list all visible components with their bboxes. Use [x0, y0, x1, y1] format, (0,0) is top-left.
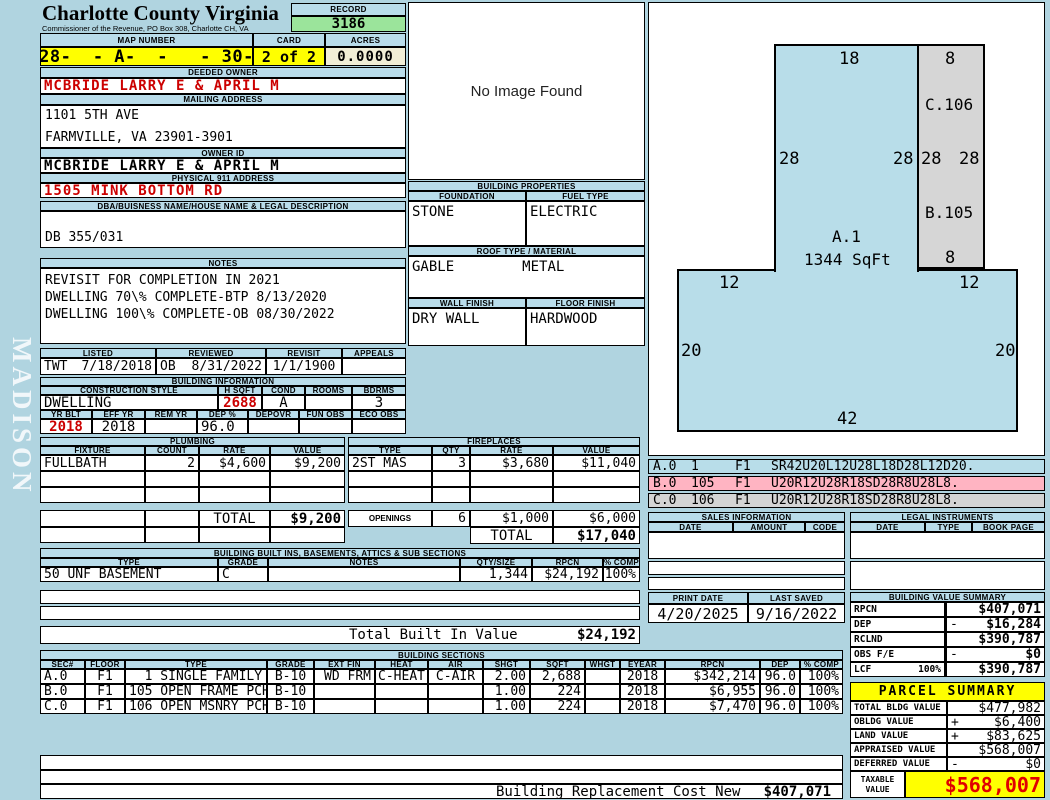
section-b-label: B.105: [925, 203, 973, 222]
built-ins-empty-row: [40, 590, 640, 604]
bs-cell: C-HEAT: [375, 669, 428, 684]
dim-18: 18: [839, 49, 859, 69]
fireplaces-total-value: $17,040: [553, 527, 640, 544]
fireplaces-headers: TYPE QTY RATE VALUE: [348, 446, 640, 455]
rooms-value: [305, 395, 352, 410]
dim-28-gray-left: 28: [921, 149, 941, 169]
county-subtitle: Commissioner of the Revenue, PO Box 308,…: [42, 24, 290, 33]
legend-code: 1: [691, 459, 735, 474]
bs-cell: 224: [530, 684, 585, 699]
revisit-label: REVISIT: [266, 348, 342, 358]
yrblt-label: YR BLT: [40, 410, 92, 419]
bs-cell: 96.0: [760, 684, 800, 699]
replacement-cost-value: $407,071: [740, 784, 839, 799]
reviewed-date: 8/31/2022: [192, 359, 262, 374]
fp-value-label: VALUE: [553, 446, 640, 455]
bs-cell: [375, 699, 428, 714]
legend-code: 106: [691, 493, 735, 508]
ps-value-cell: -$0: [947, 757, 1045, 771]
bs-cell: 106 OPEN MSNRY PCH: [125, 699, 267, 714]
bs-cell: [314, 684, 375, 699]
bs-cell: B-10: [267, 669, 314, 684]
section-a-label: A.1: [832, 227, 861, 246]
sales-code-label: CODE: [805, 522, 845, 532]
no-image-text: No Image Found: [471, 83, 583, 100]
foundation-fuel-headers: FOUNDATION FUEL TYPE: [408, 191, 645, 201]
dim-8-bottom: 8: [945, 248, 955, 268]
acres-value: 0.0000: [325, 47, 406, 66]
bs-cell: 2018: [620, 684, 665, 699]
taxable-value-row: TAXABLE VALUE $568,007: [850, 771, 1045, 798]
last-saved-value: 9/16/2022: [748, 604, 845, 623]
bs-heat-label: HEAT: [375, 660, 428, 669]
plumbing-empty-row: [40, 471, 345, 487]
section-a-sqft: 1344 SqFt: [804, 250, 891, 269]
vs-value: $390,787: [978, 662, 1041, 677]
ps-value: $0: [1025, 757, 1041, 771]
fireplaces-total-label: TOTAL: [470, 527, 553, 544]
bs-cell: 100%: [800, 699, 843, 714]
effyr-value: 2018: [92, 419, 145, 434]
ps-label: DEFERRED VALUE: [850, 757, 947, 771]
roof-label: ROOF TYPE / MATERIAL: [408, 246, 645, 256]
record-value: 3186: [291, 16, 406, 32]
dim-42: 42: [837, 409, 857, 429]
vs-value-cell: -$16,284: [945, 617, 1045, 632]
bdrms-label: BDRMS: [352, 386, 406, 395]
fireplaces-total-row: TOTAL $17,040: [348, 527, 640, 544]
bs-cell: [314, 699, 375, 714]
dim-20-right: 20: [995, 341, 1015, 361]
built-ins-row: 50 UNF BASEMENT C 1,344 $24,192 100%: [40, 567, 640, 582]
plumbing-empty-row: [40, 527, 345, 543]
deeded-owner-label: DEEDED OWNER: [40, 67, 406, 78]
legend-floor: F1: [735, 459, 771, 474]
bs-cell: [585, 684, 620, 699]
legend-trace: SR42U20L12U28L18D28L12D20.: [771, 459, 975, 474]
bi-rpcn-label: RPCN: [532, 558, 603, 567]
fireplaces-empty-row: [348, 487, 640, 503]
hsqft-value: 2688: [218, 395, 262, 410]
empty-cell: [145, 487, 199, 503]
bs-cell: WD FRM: [314, 669, 375, 684]
empty-cell: [145, 527, 199, 543]
bs-sec-label: SEC#: [40, 660, 85, 669]
bs-cell: C.0: [40, 699, 85, 714]
county-watermark: MADISON: [6, 337, 37, 496]
fp-type-value: 2ST MAS: [348, 455, 432, 471]
built-ins-empty-row: [40, 606, 640, 620]
appeals-label: APPEALS: [342, 348, 406, 358]
revisit-value: 1/1/1900: [266, 358, 342, 375]
bs-cell: [585, 699, 620, 714]
last-saved-label: LAST SAVED: [748, 592, 845, 604]
legend-code: 105: [691, 476, 735, 491]
ps-op: +: [951, 715, 959, 729]
vs-op: -: [950, 617, 958, 632]
legend-trace: U20R12U28R18SD28R8U28L8.: [771, 476, 959, 491]
empty-cell: [470, 487, 553, 503]
construction-values: DWELLING 2688 A 3: [40, 395, 406, 410]
openings-rate: $1,000: [470, 510, 553, 527]
bi-notes-label: NOTES: [268, 558, 460, 567]
empty-cell: [40, 510, 145, 527]
bs-whgt-label: WHGT: [585, 660, 620, 669]
sales-empty-row: [648, 532, 845, 559]
dim-12-right: 12: [959, 273, 979, 293]
empty-cell: [199, 487, 270, 503]
empty-cell: [553, 487, 640, 503]
wall-finish-value: DRY WALL: [408, 308, 526, 346]
note-line: DWELLING 100\% COMPLETE-OB 08/30/2022: [45, 306, 401, 323]
cond-label: COND: [262, 386, 305, 395]
dep-label: DEP %: [197, 410, 248, 419]
bs-cell: B.0: [40, 684, 85, 699]
replacement-cost-label: Building Replacement Cost New: [496, 784, 740, 799]
depovr-label: DEPOVR: [248, 410, 299, 419]
legend-row-b: B.0 105 F1 U20R12U28R18SD28R8U28L8.: [648, 476, 1045, 491]
plumbing-total-value: $9,200: [270, 510, 345, 527]
parcel-summary-row: APPRAISED VALUE $568,007: [850, 743, 1045, 757]
roof-material-value: METAL: [522, 259, 564, 275]
reviewed-by: OB: [160, 359, 176, 374]
empty-cell: [470, 471, 553, 487]
wall-finish-label: WALL FINISH: [408, 298, 526, 308]
value-summary-row: RCLND $390,787: [850, 632, 1045, 647]
built-ins-total-row: Total Built In Value $24,192: [40, 626, 640, 644]
bi-qtysize-label: QTY/SIZE: [460, 558, 532, 567]
building-section-row: B.0 F1 105 OPEN FRAME PCH B-10 1.00 224 …: [40, 684, 843, 699]
listed-value: TWT7/18/2018: [40, 358, 156, 375]
print-date-value: 4/20/2025: [648, 604, 748, 623]
building-section-row: A.0 F1 1 SINGLE FAMILY B-10 WD FRM C-HEA…: [40, 669, 843, 684]
deeded-owner-value: MCBRIDE LARRY E & APRIL M: [40, 78, 406, 94]
fixture-label: FIXTURE: [40, 446, 145, 455]
rooms-label: ROOMS: [305, 386, 352, 395]
foundation-value: STONE: [408, 201, 526, 246]
mailing-line1: 1101 5TH AVE: [45, 108, 401, 123]
vs-extra: 100%: [918, 664, 941, 675]
legend-sec: B.0: [653, 476, 691, 491]
count-value: 2: [145, 455, 199, 471]
empty-cell: [40, 487, 145, 503]
vs-label-cell: RPCN: [850, 602, 945, 617]
county-title-block: Charlotte County Virginia Commissioner o…: [42, 2, 290, 33]
ps-value: $6,400: [994, 715, 1041, 729]
depovr-value: [248, 419, 299, 434]
vs-label: RPCN: [854, 604, 877, 615]
fp-rate-value: $3,680: [470, 455, 553, 471]
bs-eyear-label: EYEAR: [620, 660, 665, 669]
bs-dep-label: DEP: [760, 660, 800, 669]
year-headers: YR BLT EFF YR REM YR DEP % DEPOVR FUN OB…: [40, 410, 406, 419]
funobs-label: FUN OBS: [299, 410, 352, 419]
bs-cell: A.0: [40, 669, 85, 684]
fireplaces-row: 2ST MAS 3 $3,680 $11,040: [348, 455, 640, 471]
empty-cell: [40, 471, 145, 487]
bs-comp-label: % COMP: [800, 660, 843, 669]
dim-28-right: 28: [893, 149, 913, 169]
legend-row-a: A.0 1 F1 SR42U20L12U28L18D28L12D20.: [648, 459, 1045, 474]
bs-cell: 1 SINGLE FAMILY: [125, 669, 267, 684]
dim-12-left: 12: [719, 273, 739, 293]
ps-label: APPRAISED VALUE: [850, 743, 947, 757]
legal-empty-row: [850, 532, 1045, 559]
ps-value-cell: $568,007: [947, 743, 1045, 757]
bs-cell: F1: [85, 684, 125, 699]
physical-address-label: PHYSICAL 911 ADDRESS: [40, 173, 406, 183]
legal-headers: DATE TYPE BOOK PAGE: [850, 522, 1045, 532]
record-label: RECORD: [291, 3, 406, 16]
effyr-label: EFF YR: [92, 410, 145, 419]
legal-description: DB 355/031: [45, 230, 401, 245]
building-sections-footer: Building Replacement Cost New $407,071: [40, 784, 843, 799]
roof-type-value: GABLE: [412, 259, 454, 275]
legal-date-label: DATE: [850, 522, 925, 532]
fireplaces-openings-row: OPENINGS 6 $1,000 $6,000: [348, 510, 640, 527]
ps-value: $568,007: [978, 743, 1041, 757]
floor-finish-value: HARDWOOD: [526, 308, 645, 346]
sketch-section-a-lower: [677, 269, 1018, 432]
vs-label-cell: OBS F/E: [850, 647, 945, 662]
ps-value: $83,625: [986, 729, 1041, 743]
ps-op: +: [951, 729, 959, 743]
parcel-summary-row: OBLDG VALUE +$6,400: [850, 715, 1045, 729]
legal-bookpage-label: BOOK PAGE: [972, 522, 1045, 532]
vs-value-cell: $390,787: [945, 662, 1045, 677]
building-sections-headers: SEC# FLOOR TYPE GRADE EXT FIN HEAT AIR S…: [40, 660, 843, 669]
foundation-label: FOUNDATION: [408, 191, 526, 201]
reviewed-value: OB8/31/2022: [156, 358, 266, 375]
construction-style-value: DWELLING: [40, 395, 218, 410]
bs-air-label: AIR: [428, 660, 483, 669]
ps-label: TOTAL BLDG VALUE: [850, 701, 947, 715]
sales-headers: DATE AMOUNT CODE: [648, 522, 845, 532]
construction-headers: CONSTRUCTION STYLE H SQFT COND ROOMS BDR…: [40, 386, 406, 395]
vs-value-cell: $390,787: [945, 632, 1045, 647]
bi-type-value: 50 UNF BASEMENT: [40, 567, 218, 582]
fireplaces-empty-row: [348, 471, 640, 487]
ps-label: OBLDG VALUE: [850, 715, 947, 729]
empty-cell: [432, 487, 470, 503]
map-card-acres-headers: MAP NUMBER CARD ACRES: [40, 33, 406, 47]
building-information-title: BUILDING INFORMATION: [40, 377, 406, 386]
appeals-value: [342, 358, 406, 375]
built-ins-total-label: Total Built In Value: [349, 627, 518, 643]
section-c-label: C.106: [925, 95, 973, 114]
empty-cell: [270, 487, 345, 503]
legend-floor: F1: [735, 493, 771, 508]
bi-qtysize-value: 1,344: [460, 567, 532, 582]
building-properties-title: BUILDING PROPERTIES: [408, 181, 645, 191]
photo-placeholder: No Image Found: [408, 2, 645, 180]
reviewed-label: REVIEWED: [156, 348, 266, 358]
building-section-row: C.0 F1 106 OPEN MSNRY PCH B-10 1.00 224 …: [40, 699, 843, 714]
bs-cell: 1.00: [483, 699, 530, 714]
mailing-address-label: MAILING ADDRESS: [40, 94, 406, 105]
spacer: [348, 527, 470, 544]
listed-by: TWT: [44, 359, 67, 374]
sales-amount-label: AMOUNT: [733, 522, 805, 532]
bs-cell: 96.0: [760, 669, 800, 684]
fueltype-label: FUEL TYPE: [526, 191, 645, 201]
owner-id-label: OWNER ID: [40, 148, 406, 158]
property-record-card: { "colors": { "highlight_yellow": "#ffff…: [0, 0, 1050, 800]
legend-sec: A.0: [653, 459, 691, 474]
construction-style-label: CONSTRUCTION STYLE: [40, 386, 218, 395]
notes-box: REVISIT FOR COMPLETION IN 2021 DWELLING …: [40, 268, 406, 344]
built-ins-headers: TYPE GRADE NOTES QTY/SIZE RPCN % COMP: [40, 558, 640, 567]
taxable-label: TAXABLE VALUE: [850, 771, 905, 798]
bi-comp-label: % COMP: [603, 558, 640, 567]
bs-cell: B-10: [267, 699, 314, 714]
date-values: 4/20/2025 9/16/2022: [648, 604, 845, 623]
legend-sec: C.0: [653, 493, 691, 508]
visit-values: TWT7/18/2018 OB8/31/2022 1/1/1900: [40, 358, 406, 375]
bs-cell: $7,470: [665, 699, 760, 714]
listed-date: 7/18/2018: [82, 359, 152, 374]
bs-floor-label: FLOOR: [85, 660, 125, 669]
fueltype-value: ELECTRIC: [526, 201, 645, 246]
empty-cell: [270, 471, 345, 487]
fp-qty-value: 3: [432, 455, 470, 471]
value-label: VALUE: [270, 446, 345, 455]
bs-cell: $342,214: [665, 669, 760, 684]
bi-comp-value: 100%: [603, 567, 640, 582]
vs-value-cell: $407,071: [945, 602, 1045, 617]
legal-type-label: TYPE: [925, 522, 972, 532]
value-summary-title: BUILDING VALUE SUMMARY: [850, 592, 1045, 602]
openings-qty: 6: [432, 510, 470, 527]
bs-cell: [428, 699, 483, 714]
bs-cell: 100%: [800, 684, 843, 699]
fp-rate-label: RATE: [470, 446, 553, 455]
card-label: CARD: [253, 33, 325, 47]
listed-label: LISTED: [40, 348, 156, 358]
building-sections-empty-row: [40, 755, 843, 770]
mailing-address-box: 1101 5TH AVE FARMVILLE, VA 23901-3901: [40, 105, 406, 148]
empty-cell: [199, 527, 270, 543]
ps-value-cell: $477,982: [947, 701, 1045, 715]
empty-cell: [348, 487, 432, 503]
sales-empty-row: [648, 577, 845, 590]
empty-cell: [432, 471, 470, 487]
bs-cell: 105 OPEN FRAME PCH: [125, 684, 267, 699]
date-headers: PRINT DATE LAST SAVED: [648, 592, 845, 604]
owner-id-value: MCBRIDE LARRY E & APRIL M: [40, 158, 406, 173]
roof-values: GABLE METAL: [408, 256, 645, 298]
hsqft-label: H SQFT: [218, 386, 262, 395]
legal-empty-row: [850, 561, 1045, 590]
bi-rpcn-value: $24,192: [532, 567, 603, 582]
plumbing-empty-row: [40, 487, 345, 503]
built-ins-total-value: $24,192: [560, 627, 636, 643]
parcel-summary-title: PARCEL SUMMARY: [850, 682, 1045, 701]
ps-label: LAND VALUE: [850, 729, 947, 743]
value-summary-row: RPCN $407,071: [850, 602, 1045, 617]
plumbing-title: PLUMBING: [40, 437, 345, 446]
vs-value: $0: [1025, 647, 1041, 662]
dep-value: 96.0: [197, 419, 248, 434]
dim-20-left: 20: [681, 341, 701, 361]
ecoobs-value: [352, 419, 406, 434]
bs-cell: 96.0: [760, 699, 800, 714]
acres-label: ACRES: [325, 33, 406, 47]
fireplaces-title: FIREPLACES: [348, 437, 640, 446]
bs-cell: F1: [85, 699, 125, 714]
fp-type-label: TYPE: [348, 446, 432, 455]
bs-cell: B-10: [267, 684, 314, 699]
note-line: REVISIT FOR COMPLETION IN 2021: [45, 272, 401, 289]
building-sections-title: BUILDING SECTIONS: [40, 650, 843, 660]
value-summary-row: DEP -$16,284: [850, 617, 1045, 632]
bs-cell: $6,955: [665, 684, 760, 699]
vs-label-cell: LCF100%: [850, 662, 945, 677]
bi-notes-value: [268, 567, 460, 582]
ecoobs-label: ECO OBS: [352, 410, 406, 419]
plumbing-headers: FIXTURE COUNT RATE VALUE: [40, 446, 345, 455]
map-number-value: 028- - A- - - 30-D: [40, 47, 253, 66]
empty-cell: [348, 471, 432, 487]
vs-value-cell: -$0: [945, 647, 1045, 662]
bs-shgt-label: SHGT: [483, 660, 530, 669]
rate-value: $4,600: [199, 455, 270, 471]
bi-type-label: TYPE: [40, 558, 218, 567]
empty-cell: [553, 471, 640, 487]
wall-floor-values: DRY WALL HARDWOOD: [408, 308, 645, 346]
card-value: 2 of 2: [253, 47, 325, 66]
sketch-canvas: 18 8 C.106 28 28 28 28 B.105 A.1 1344 Sq…: [648, 2, 1045, 456]
count-label: COUNT: [145, 446, 199, 455]
plumbing-row: FULLBATH 2 $4,600 $9,200: [40, 455, 345, 471]
bs-cell: [375, 684, 428, 699]
vs-label-cell: RCLND: [850, 632, 945, 647]
empty-cell: [199, 471, 270, 487]
map-card-acres-values: 028- - A- - - 30-D 2 of 2 0.0000: [40, 47, 406, 66]
dim-28-left: 28: [779, 149, 799, 169]
bs-grade-label: GRADE: [267, 660, 314, 669]
floor-finish-label: FLOOR FINISH: [526, 298, 645, 308]
vs-value: $390,787: [978, 632, 1041, 647]
empty-cell: [40, 527, 145, 543]
year-values: 2018 2018 96.0: [40, 419, 406, 434]
vs-label: DEP: [854, 619, 871, 630]
openings-label: OPENINGS: [348, 510, 432, 527]
dim-8-top: 8: [945, 49, 955, 69]
bs-cell: F1: [85, 669, 125, 684]
ps-value-cell: +$6,400: [947, 715, 1045, 729]
vs-op: -: [950, 647, 958, 662]
vs-label: LCF: [854, 664, 871, 675]
ps-op: -: [951, 757, 959, 771]
fp-value-value: $11,040: [553, 455, 640, 471]
dim-28-gray-right: 28: [959, 149, 979, 169]
bdrms-value: 3: [352, 395, 406, 410]
taxable-value: $568,007: [905, 771, 1045, 798]
dba-box: DB 355/031: [40, 211, 406, 248]
bs-cell: 2018: [620, 699, 665, 714]
bs-cell: C-AIR: [428, 669, 483, 684]
bs-cell: 100%: [800, 669, 843, 684]
notes-label: NOTES: [40, 258, 406, 268]
remyr-value: [145, 419, 197, 434]
bs-sqft-label: SQFT: [530, 660, 585, 669]
ps-value-cell: +$83,625: [947, 729, 1045, 743]
bs-extfin-label: EXT FIN: [314, 660, 375, 669]
bi-grade-label: GRADE: [218, 558, 268, 567]
vs-label: OBS F/E: [854, 649, 894, 660]
legend-row-c: C.0 106 F1 U20R12U28R18SD28R8U28L8.: [648, 493, 1045, 508]
